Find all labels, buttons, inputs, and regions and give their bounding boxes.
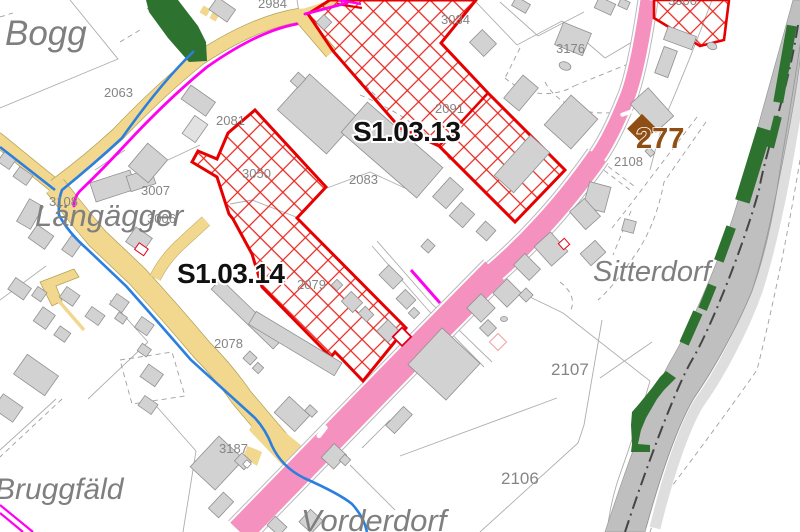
svg-text:2106: 2106 [501,469,539,488]
svg-text:3050: 3050 [242,166,271,181]
svg-text:Sitterdorf: Sitterdorf [593,256,714,288]
svg-text:S1.03.13: S1.03.13 [353,116,460,147]
svg-text:S1.03.14: S1.03.14 [177,258,285,289]
svg-text:2063: 2063 [104,85,133,100]
svg-text:2107: 2107 [551,360,589,379]
svg-text:Bogg: Bogg [5,14,87,53]
svg-text:Längägger: Längägger [35,198,185,233]
svg-text:2091: 2091 [435,101,464,116]
svg-text:2078: 2078 [214,336,243,351]
svg-text:2984: 2984 [258,0,287,11]
svg-text:2108: 2108 [614,154,643,169]
svg-text:2081: 2081 [216,113,245,128]
svg-text:3176: 3176 [556,41,585,56]
svg-text:Bruggfäld: Bruggfäld [0,473,125,506]
svg-text:2079: 2079 [297,277,326,292]
svg-text:3000: 3000 [668,0,697,8]
svg-text:3187: 3187 [219,441,248,456]
svg-text:3034: 3034 [441,12,470,27]
svg-text:2083: 2083 [349,172,378,187]
svg-text:277: 277 [636,123,684,155]
svg-text:3007: 3007 [141,183,170,198]
svg-text:Vorderdorf: Vorderdorf [301,503,450,532]
